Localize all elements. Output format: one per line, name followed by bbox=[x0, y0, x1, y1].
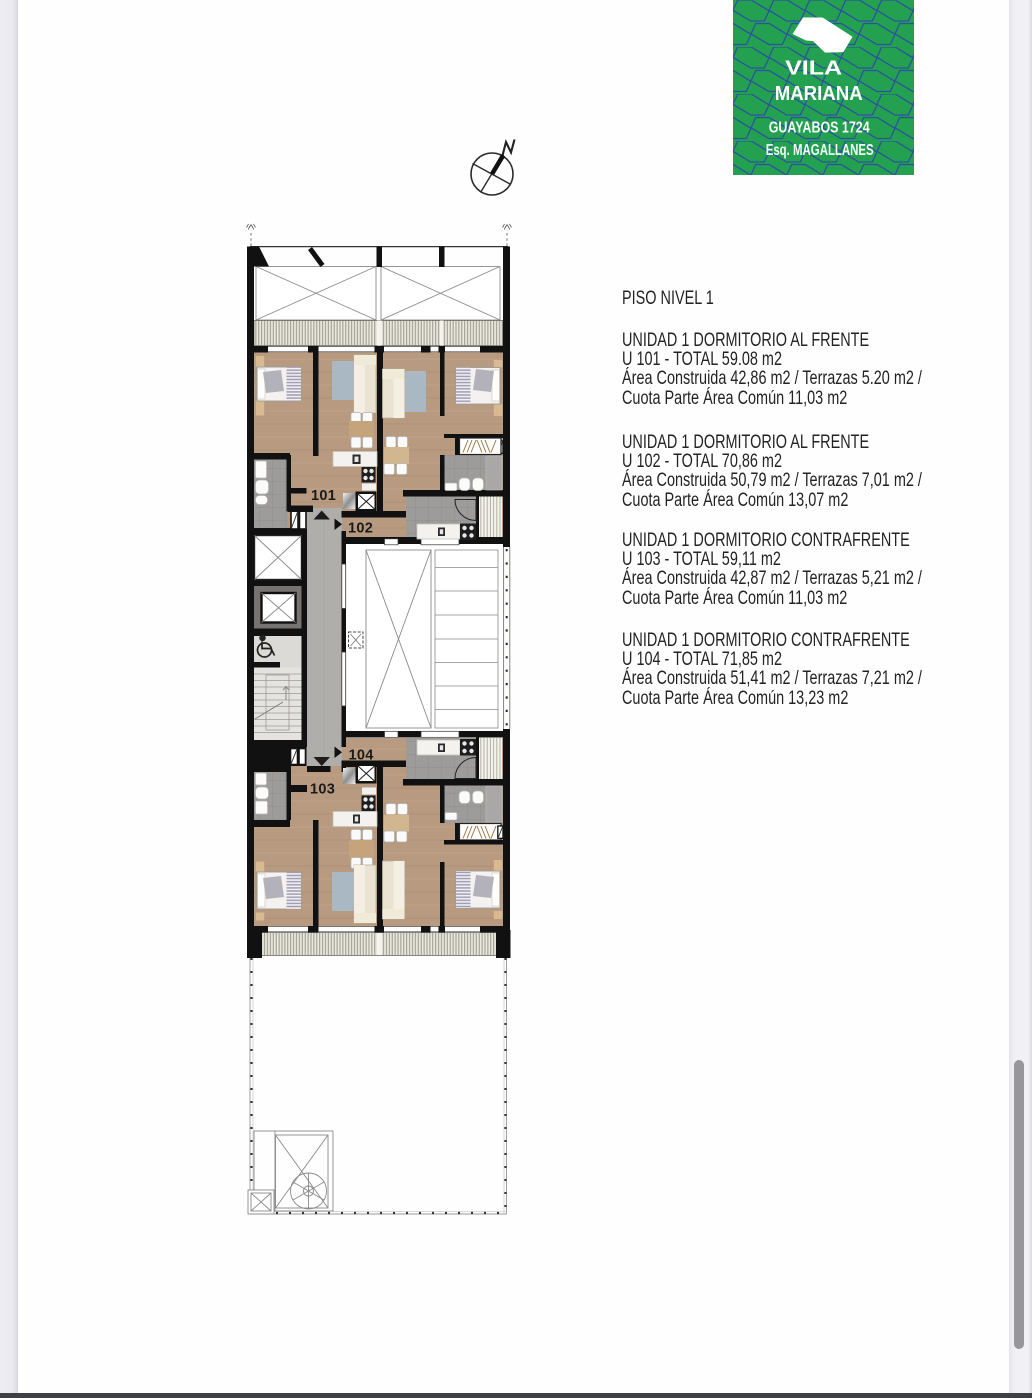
svg-text:103: 103 bbox=[310, 782, 335, 798]
svg-text:102: 102 bbox=[348, 521, 373, 537]
svg-text:101: 101 bbox=[311, 488, 336, 504]
svg-text:104: 104 bbox=[349, 748, 374, 764]
